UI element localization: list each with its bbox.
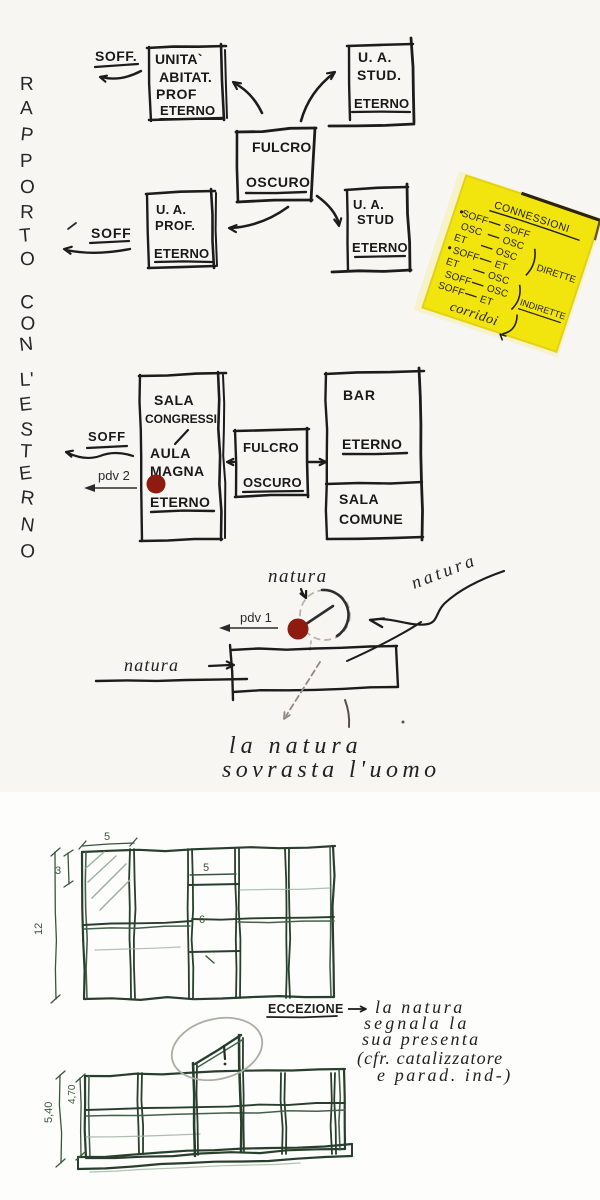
svg-text:5,40: 5,40: [43, 1102, 55, 1123]
svg-text:5: 5: [203, 862, 209, 874]
svg-text:5: 5: [104, 831, 110, 843]
svg-text:P: P: [19, 124, 34, 146]
svg-text:ETERNO: ETERNO: [150, 494, 210, 510]
svg-text:PROF: PROF: [156, 86, 197, 102]
svg-text:T: T: [20, 441, 33, 463]
svg-text:U. A.: U. A.: [353, 197, 384, 212]
svg-text:U. A.: U. A.: [156, 202, 186, 217]
svg-text:U. A.: U. A.: [358, 49, 392, 65]
svg-text:STUD: STUD: [357, 212, 394, 227]
svg-text:natura: natura: [268, 566, 328, 587]
svg-text:ETERNO: ETERNO: [342, 436, 402, 452]
svg-text:pdv 1: pdv 1: [240, 610, 272, 625]
svg-text:SOFF: SOFF: [88, 429, 126, 444]
svg-text:SOFF: SOFF: [91, 225, 132, 241]
svg-text:ETERNO: ETERNO: [352, 240, 408, 255]
svg-text:A: A: [20, 98, 33, 119]
svg-text:e parad. ind-): e parad. ind-): [377, 1065, 513, 1086]
svg-text:pdv 2: pdv 2: [98, 468, 130, 483]
svg-text:12: 12: [33, 923, 45, 935]
svg-text:BAR: BAR: [343, 387, 376, 403]
svg-text:FULCRO: FULCRO: [243, 440, 299, 455]
svg-text:R: R: [19, 487, 35, 510]
svg-text:FULCRO: FULCRO: [252, 139, 312, 155]
svg-text:OSCURO: OSCURO: [246, 174, 310, 190]
svg-text:4,70: 4,70: [67, 1084, 78, 1104]
svg-text:S: S: [20, 419, 34, 441]
svg-text:C: C: [20, 292, 34, 313]
svg-text:O: O: [20, 249, 35, 270]
svg-text:ETERNO: ETERNO: [154, 246, 209, 261]
svg-text:CONGRESSI: CONGRESSI: [145, 412, 217, 426]
svg-text:STUD.: STUD.: [357, 67, 402, 83]
svg-text:AULA: AULA: [150, 445, 191, 461]
svg-text:sua presenta: sua presenta: [362, 1029, 480, 1049]
svg-text:natura: natura: [124, 655, 179, 675]
svg-text:O: O: [20, 541, 36, 563]
svg-text:ETERNO: ETERNO: [160, 103, 215, 118]
svg-text:ABITAT.: ABITAT.: [159, 69, 212, 85]
svg-text:N: N: [19, 514, 35, 537]
svg-text:UNITA`: UNITA`: [155, 51, 203, 67]
svg-text:COMUNE: COMUNE: [339, 511, 403, 527]
svg-text:L': L': [19, 369, 34, 391]
svg-text:R: R: [20, 74, 34, 95]
svg-text:E: E: [18, 394, 33, 416]
svg-text:3: 3: [55, 865, 61, 877]
svg-text:sovrasta l'uomo: sovrasta l'uomo: [222, 757, 440, 783]
svg-text:6: 6: [199, 914, 205, 926]
svg-text:T: T: [19, 225, 33, 247]
svg-text:SALA: SALA: [339, 491, 379, 507]
svg-text:N: N: [18, 334, 34, 356]
svg-text:P: P: [20, 151, 33, 172]
svg-text:SOFF.: SOFF.: [95, 48, 137, 64]
svg-text:R: R: [20, 202, 34, 223]
svg-text:SALA: SALA: [154, 392, 194, 408]
svg-text:E: E: [18, 463, 33, 485]
svg-text:OSCURO: OSCURO: [243, 475, 302, 490]
svg-text:PROF.: PROF.: [155, 218, 195, 233]
svg-text:O: O: [20, 313, 36, 335]
svg-text:ECCEZIONE: ECCEZIONE: [268, 1002, 344, 1016]
svg-text:ETERNO: ETERNO: [354, 96, 409, 111]
svg-text:la natura: la natura: [229, 733, 363, 759]
svg-text:O: O: [20, 177, 35, 198]
